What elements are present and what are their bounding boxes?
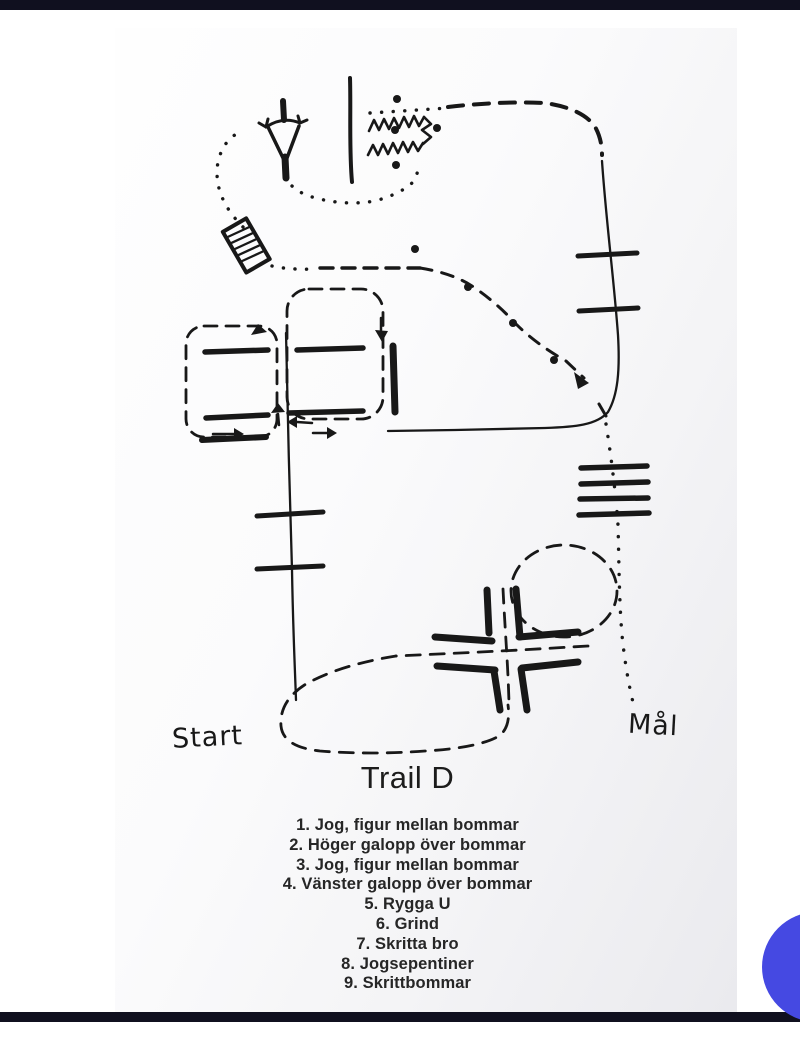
bottom-edge-bar bbox=[0, 1012, 800, 1022]
course-list-item: 8. Jogsepentiner bbox=[100, 955, 715, 975]
app-viewport: { "colors": { "ink": "#181818", "edge_ba… bbox=[0, 0, 800, 1039]
course-list-item: 2. Höger galopp över bommar bbox=[100, 836, 715, 856]
course-list-item: 1. Jog, figur mellan bommar bbox=[100, 816, 715, 836]
course-title: Trail D bbox=[100, 760, 715, 796]
floating-action-button[interactable] bbox=[762, 912, 800, 1022]
top-edge-bar bbox=[0, 0, 800, 10]
course-list-item: 6. Grind bbox=[100, 915, 715, 935]
start-label: Start bbox=[171, 720, 243, 755]
course-list-item: 3. Jog, figur mellan bommar bbox=[100, 856, 715, 876]
course-list-item: 9. Skrittbommar bbox=[100, 974, 715, 994]
course-list-item: 7. Skritta bro bbox=[100, 935, 715, 955]
course-list: 1. Jog, figur mellan bommar 2. Höger gal… bbox=[100, 816, 715, 994]
course-list-item: 5. Rygga U bbox=[100, 895, 715, 915]
goal-label: Mål bbox=[627, 709, 679, 743]
course-list-item: 4. Vänster galopp över bommar bbox=[100, 875, 715, 895]
